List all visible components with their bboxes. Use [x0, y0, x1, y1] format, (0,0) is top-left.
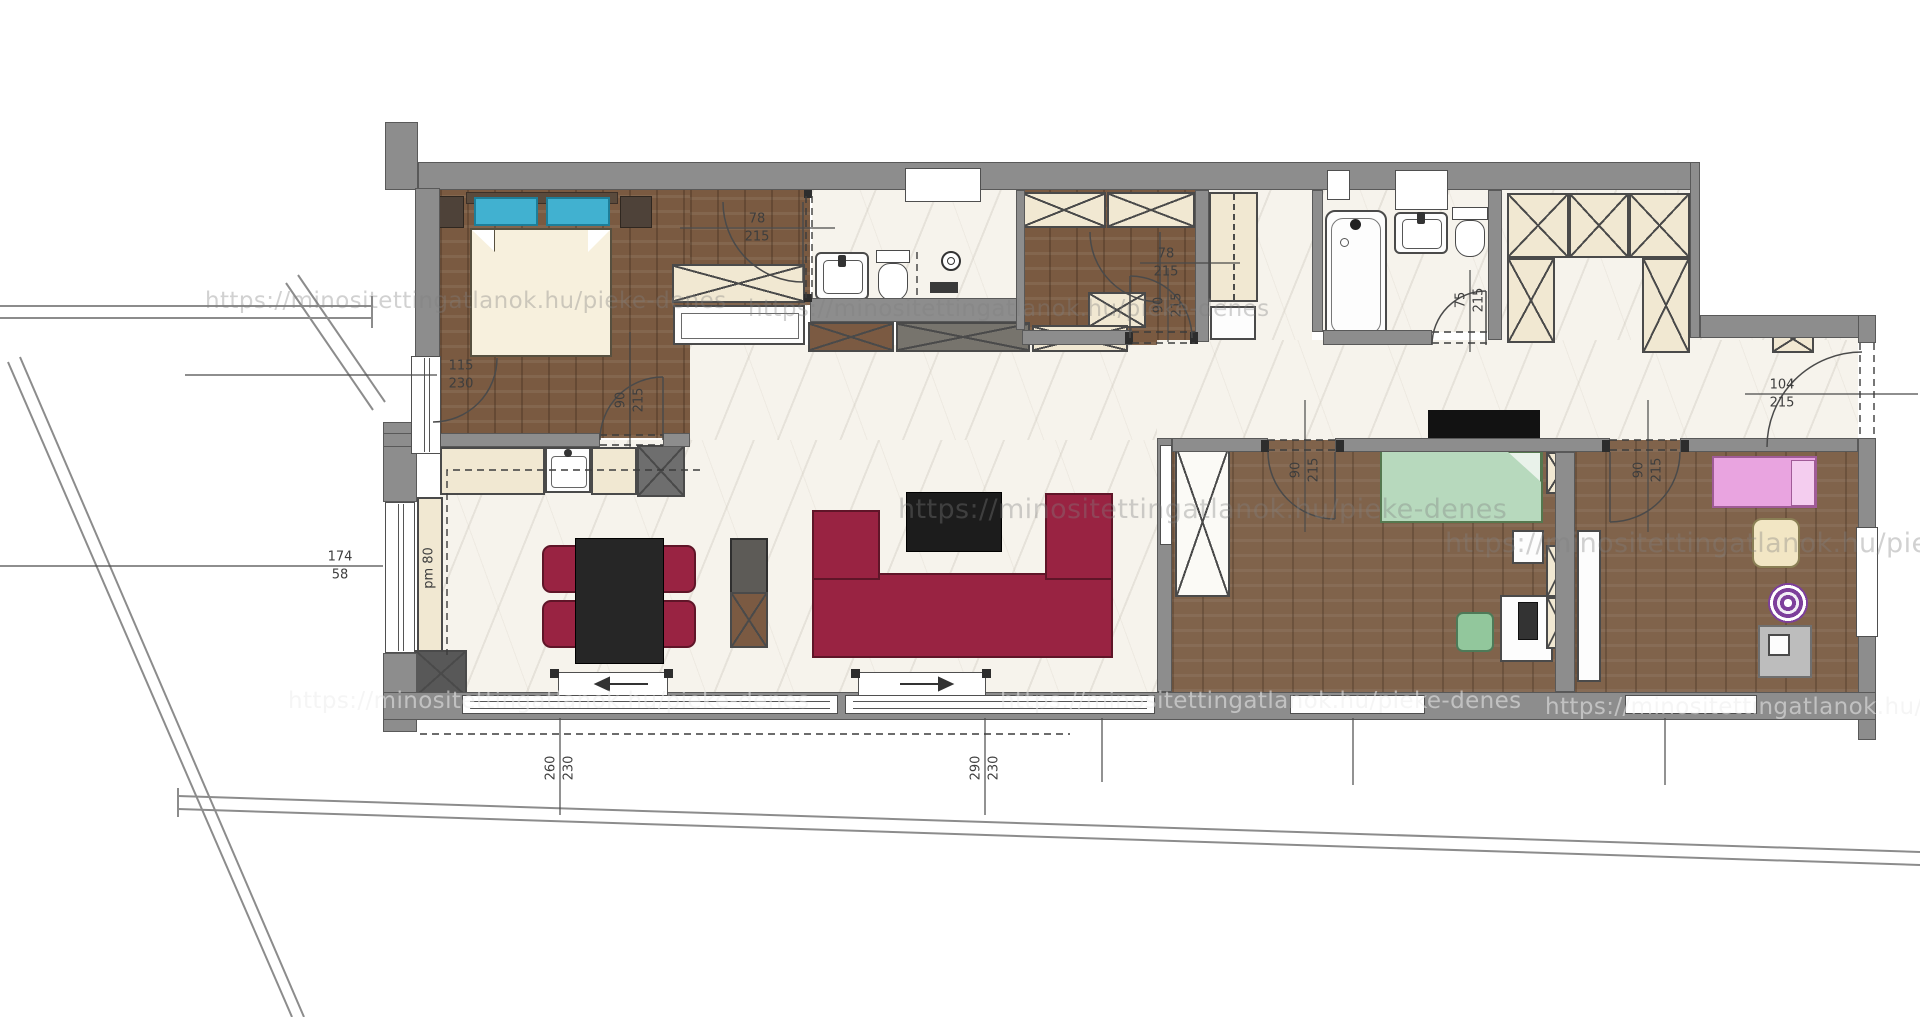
watermark: https://minositettingatlanok.hu/pieke-de…	[1445, 528, 1920, 559]
dim-value: 230	[563, 756, 576, 781]
watermark: https://minositettingatlanok.hu/pieke-de…	[898, 494, 1507, 525]
floor-plan-canvas: 115 230 174 58 104 215 78 215 78 215 90 …	[0, 0, 1920, 1017]
dim-value: 90	[1290, 462, 1303, 479]
dim-value: 230	[449, 378, 474, 391]
closet-door-arc-b	[1090, 232, 1160, 302]
dim-value: 115	[449, 360, 474, 373]
dim-dressing-door: 78 215	[745, 213, 770, 244]
dim-terrace-door-1: 260 230	[545, 756, 576, 781]
dim-value: 78	[749, 213, 766, 226]
dim-left-window: 174 58	[328, 551, 353, 582]
dim-value: 90	[1633, 462, 1646, 479]
dim-value: 215	[1473, 288, 1486, 313]
dim-value: 78	[1158, 248, 1175, 261]
dim-bedroom-window: 115 230	[449, 360, 474, 391]
dim-kid1-door: 90 215	[1290, 458, 1321, 483]
dim-value: 90	[615, 392, 628, 409]
dim-value: 215	[745, 231, 770, 244]
dim-bedroom-door: 90 215	[615, 388, 646, 413]
dim-closet-door: 78 215	[1154, 248, 1179, 279]
dim-value: 260	[545, 756, 558, 781]
dim-value: 104	[1770, 379, 1795, 392]
dim-kid2-door: 90 215	[1633, 458, 1664, 483]
dim-value: 215	[633, 388, 646, 413]
dim-value: 230	[988, 756, 1001, 781]
watermark: https://minositettingatlanok.hu/pieke-de…	[205, 288, 727, 314]
dim-value: 290	[970, 756, 983, 781]
dim-value: 174	[328, 551, 353, 564]
dim-bath2-door: 75 215	[1455, 288, 1486, 313]
dim-value: 75	[1455, 292, 1468, 309]
dim-entry-door: 104 215	[1770, 379, 1795, 410]
dim-value: 215	[1308, 458, 1321, 483]
dim-value: 215	[1770, 397, 1795, 410]
watermark: https://minositettingatlanok.hu/pieke-de…	[1545, 694, 1920, 720]
dim-value: 215	[1651, 458, 1664, 483]
dim-value: 215	[1154, 266, 1179, 279]
property-boundary	[0, 275, 1920, 1017]
watermark: https://minositettingatlanok.hu/pieke-de…	[288, 688, 810, 714]
dim-terrace-door-2: 290 230	[970, 756, 1001, 781]
watermark: https://minositettingatlanok.hu/pieke-de…	[748, 296, 1270, 322]
dim-value: pm 80	[423, 547, 436, 589]
parapet-note: pm 80	[423, 547, 436, 589]
watermark: https://minositettingatlanok.hu/pieke-de…	[1000, 688, 1522, 714]
dim-value: 58	[332, 569, 349, 582]
